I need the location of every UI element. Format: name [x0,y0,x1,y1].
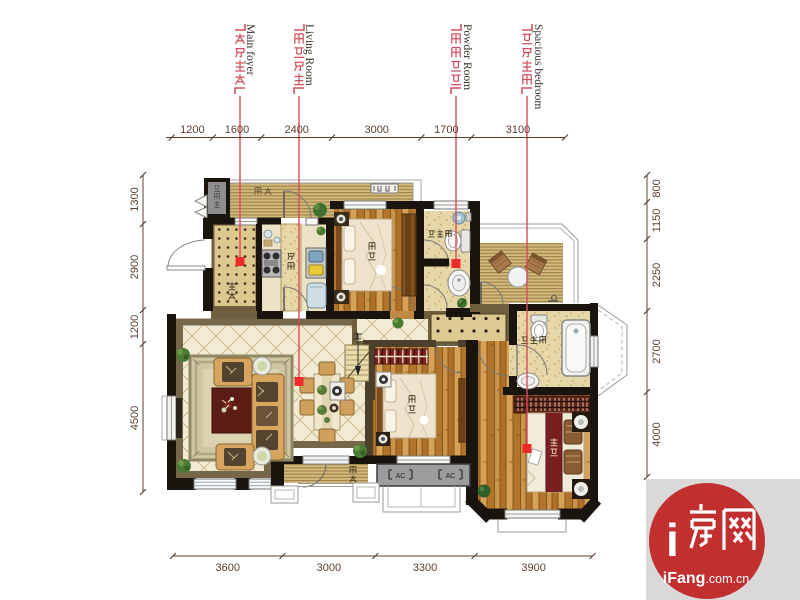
svg-text:Main foyer: Main foyer [244,24,256,76]
svg-text:AC: AC [446,473,456,480]
svg-text:4000: 4000 [651,422,663,446]
svg-text:800: 800 [651,179,663,197]
svg-text:iFang.com.cn: iFang.com.cn [663,570,749,587]
svg-text:Spacious bedroom: Spacious bedroom [532,24,544,109]
svg-text:1150: 1150 [651,209,663,233]
svg-text:1700: 1700 [434,124,458,136]
svg-text:1300: 1300 [129,187,141,211]
svg-text:3900: 3900 [521,562,545,574]
svg-text:1200: 1200 [180,124,204,136]
svg-text:1200: 1200 [129,315,141,339]
svg-text:Powder Room: Powder Room [461,24,473,90]
svg-text:2250: 2250 [651,263,663,287]
svg-text:1600: 1600 [225,124,249,136]
svg-text:3600: 3600 [216,562,240,574]
svg-text:2400: 2400 [284,124,308,136]
svg-text:AC: AC [396,473,406,480]
svg-text:3000: 3000 [364,124,388,136]
svg-text:3000: 3000 [317,562,341,574]
svg-text:2900: 2900 [129,255,141,279]
svg-text:3100: 3100 [506,124,530,136]
svg-text:2700: 2700 [651,339,663,363]
svg-text:i: i [666,514,679,566]
svg-text:3300: 3300 [413,562,437,574]
svg-text:4500: 4500 [129,406,141,430]
svg-text:Living Room: Living Room [303,24,315,86]
